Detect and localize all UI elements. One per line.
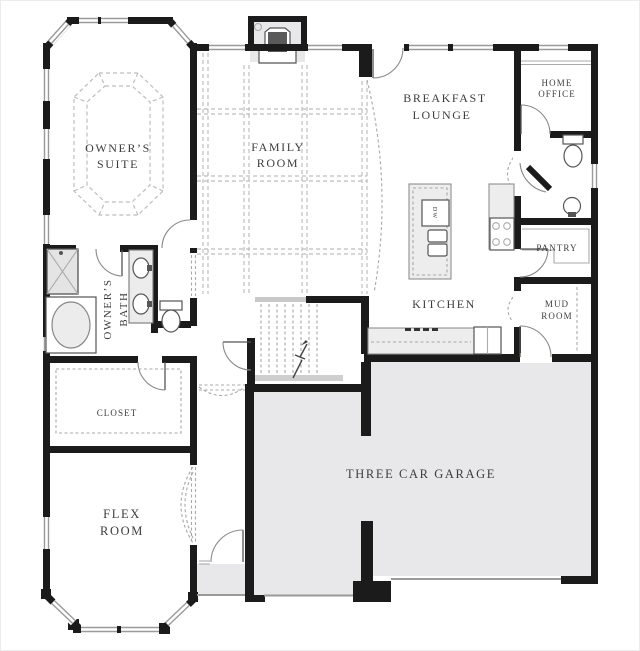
powder-sink (564, 198, 581, 218)
curved-opening-line (367, 80, 382, 293)
family-room-label2: ROOM (257, 156, 299, 170)
floor-plan: DW (0, 0, 640, 651)
suite-door-arc (162, 220, 190, 248)
entry-threshold (199, 561, 210, 564)
closet-label: CLOSET (97, 408, 138, 418)
faucet-icon (147, 301, 152, 307)
breakfast-door-arc (373, 48, 403, 78)
mud-room-label2: ROOM (541, 311, 572, 321)
home-office-label2: OFFICE (538, 89, 576, 99)
pantry-label: PANTRY (536, 243, 577, 253)
breakfast-lounge-label: BREAKFAST (403, 91, 487, 105)
home-office-label: HOME (542, 78, 573, 88)
shower (47, 249, 78, 294)
foyer-arch (199, 385, 245, 396)
family-room-label: FAMILY (251, 140, 305, 154)
bathtub (46, 297, 96, 353)
garage-label: THREE CAR GARAGE (346, 467, 496, 481)
family-room-coffered-ceiling (197, 53, 367, 294)
kitchen-label: KITCHEN (412, 297, 476, 311)
hall-cased-opening (192, 255, 196, 296)
stairs-door-arc (223, 342, 251, 370)
owners-bath-label2: BATH (118, 291, 130, 326)
kitchen-island: DW (409, 184, 451, 279)
dishwasher-label: DW (431, 207, 437, 219)
flex-room-arch (181, 467, 196, 543)
owners-toilet (160, 301, 182, 332)
flex-room-label: FLEX (103, 507, 141, 521)
breakfast-lounge-label2: LOUNGE (413, 108, 472, 122)
mud-room-label: MUD (545, 299, 569, 309)
kitchen-range-counter (489, 184, 514, 250)
office-door-arc (521, 105, 550, 134)
flex-room-label2: ROOM (100, 524, 144, 538)
owners-suite-label2: SUITE (97, 157, 139, 171)
mudroom-garage-door-arc (520, 326, 551, 357)
shower-head-icon (59, 251, 63, 255)
faucet-icon (147, 265, 152, 271)
fireplace (248, 16, 307, 63)
pantry-door-arc (520, 249, 548, 277)
office-window-seat (521, 61, 591, 65)
bath-door-arc (96, 249, 122, 276)
stairs (255, 297, 343, 381)
entry-porch (197, 564, 245, 595)
owners-suite-label: OWNER’S (85, 141, 151, 155)
front-door-arc (211, 530, 243, 562)
range (490, 218, 514, 250)
powder-toilet (563, 135, 583, 167)
kitchen-back-counter (368, 327, 501, 354)
double-vanity (129, 250, 153, 323)
owners-bath-label: OWNER’S (102, 278, 114, 339)
closet-door-arc (138, 362, 165, 390)
closet-shelving (56, 369, 181, 433)
floor-plan-drawing: DW (1, 1, 640, 651)
